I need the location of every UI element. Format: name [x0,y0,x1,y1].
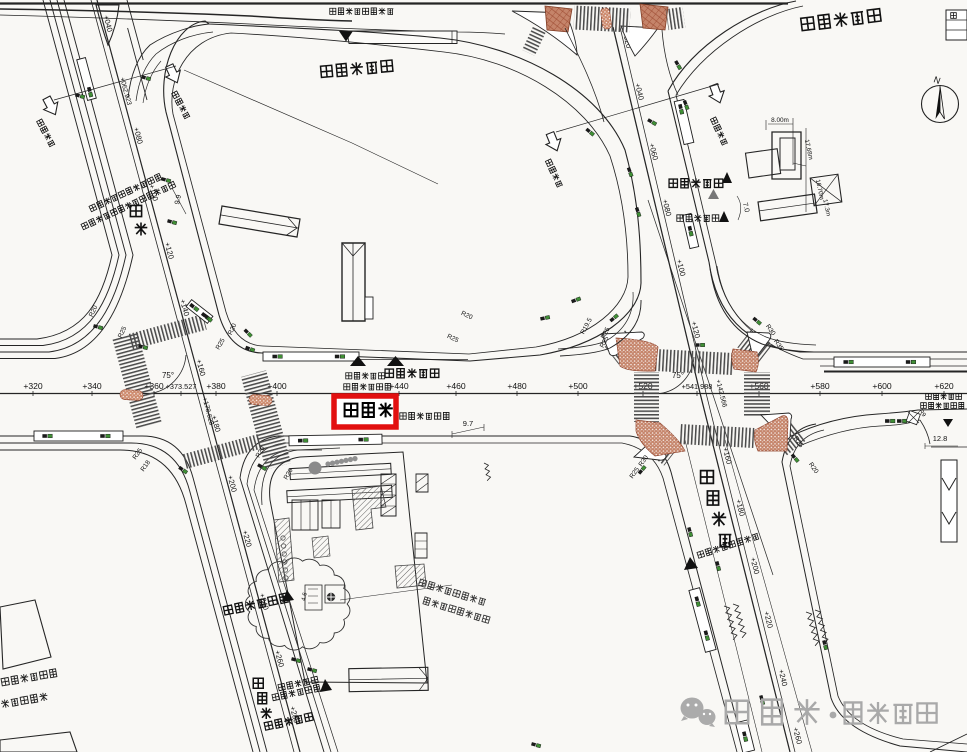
svg-text:+440: +440 [389,381,409,391]
svg-text:+340: +340 [82,381,102,391]
svg-text:9.7: 9.7 [463,419,473,428]
svg-text:+620: +620 [934,381,954,391]
svg-text:+380: +380 [206,381,226,391]
svg-text:+580: +580 [810,381,830,391]
svg-text:+480: +480 [507,381,527,391]
svg-text:+373.527: +373.527 [166,382,197,391]
svg-text:12.8: 12.8 [933,434,948,443]
svg-text:8.00m: 8.00m [771,117,789,124]
svg-text:+541.988: +541.988 [682,382,713,391]
svg-text:+460: +460 [446,381,466,391]
svg-text:+320: +320 [23,381,43,391]
svg-text:+600: +600 [872,381,892,391]
svg-text:+500: +500 [568,381,588,391]
svg-text:75°: 75° [162,371,174,380]
